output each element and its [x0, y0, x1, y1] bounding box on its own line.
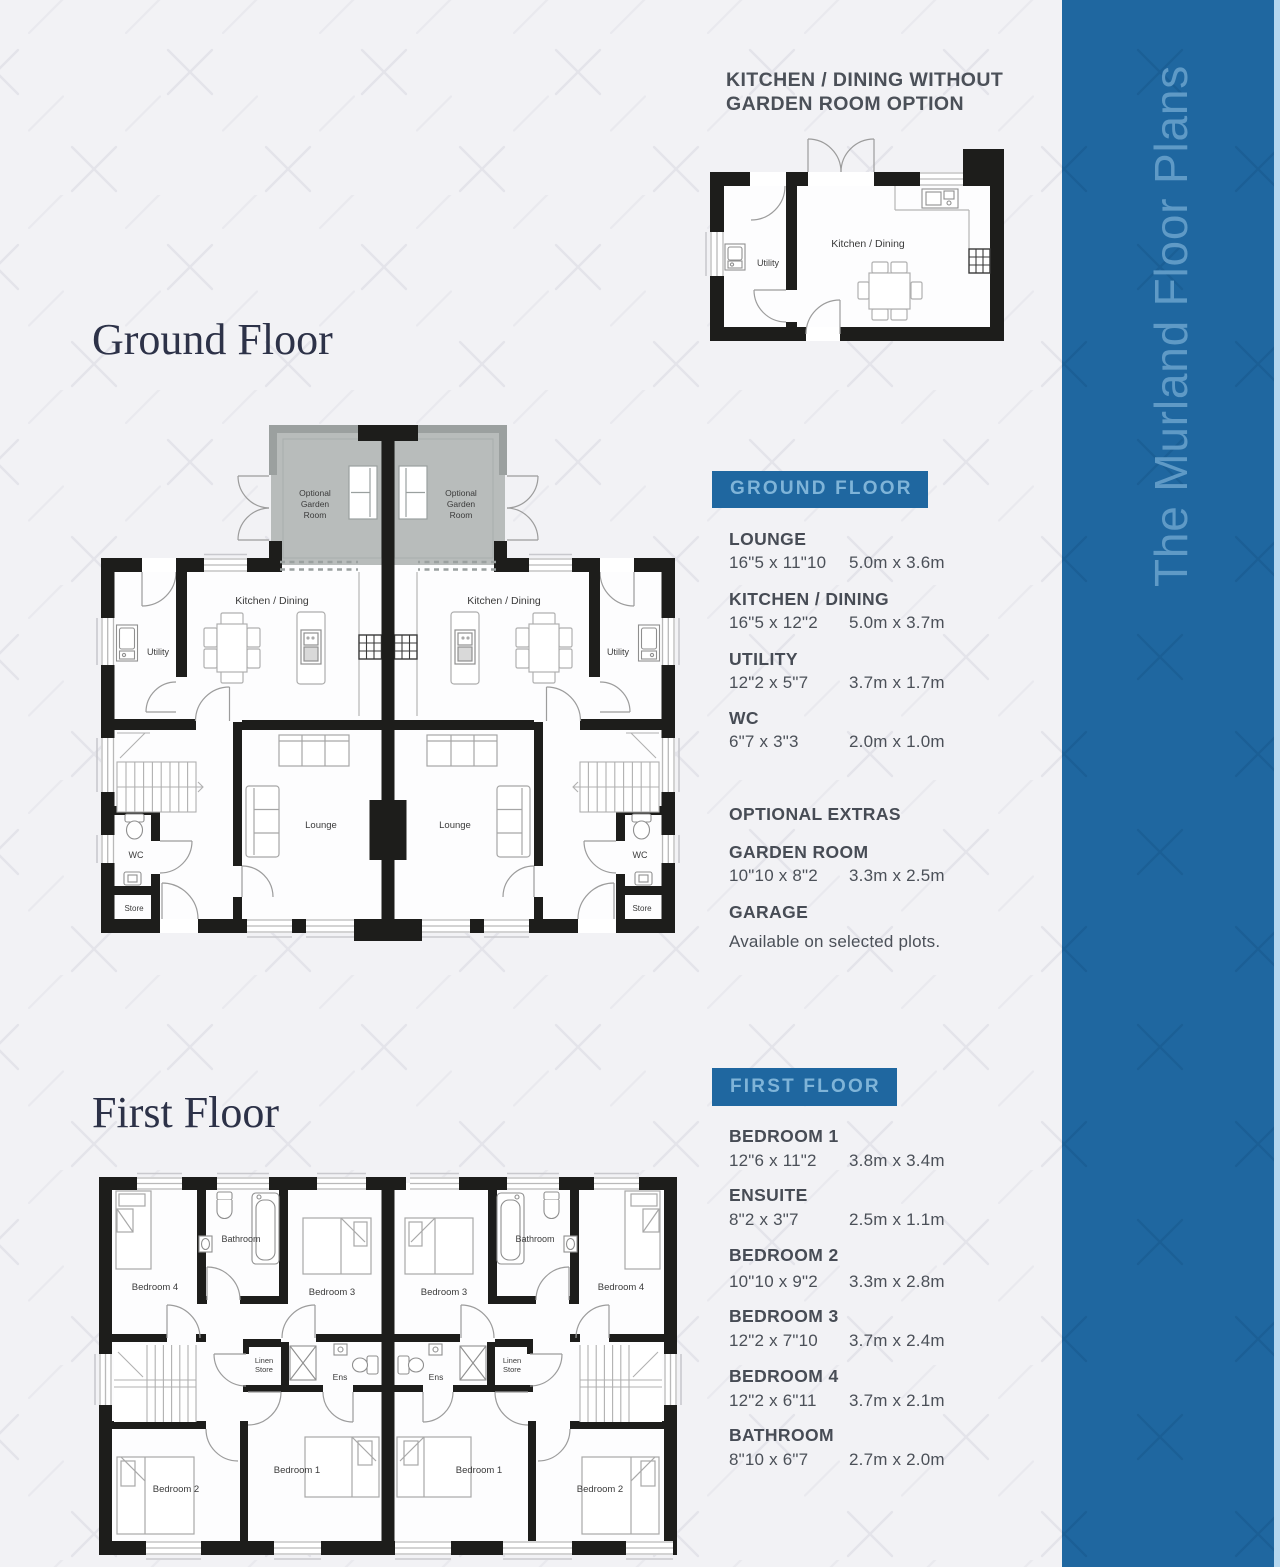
svg-text:Garden: Garden [447, 499, 476, 509]
svg-text:Bedroom 2: Bedroom 2 [577, 1484, 623, 1495]
svg-text:Bedroom 1: Bedroom 1 [456, 1465, 502, 1476]
svg-text:Bedroom 3: Bedroom 3 [309, 1287, 355, 1298]
svg-text:Store: Store [255, 1365, 273, 1374]
svg-text:Optional: Optional [445, 488, 477, 498]
svg-text:Linen: Linen [503, 1356, 521, 1365]
svg-text:Bedroom 4: Bedroom 4 [598, 1282, 644, 1293]
svg-text:Ens: Ens [429, 1372, 444, 1382]
svg-text:Room: Room [450, 510, 473, 520]
svg-text:Garden: Garden [301, 499, 330, 509]
svg-text:Optional: Optional [299, 488, 331, 498]
svg-text:Bathroom: Bathroom [515, 1234, 554, 1244]
svg-text:WC: WC [129, 850, 144, 860]
svg-text:Bedroom 2: Bedroom 2 [153, 1484, 199, 1495]
svg-text:Ens: Ens [333, 1372, 348, 1382]
svg-text:WC: WC [633, 850, 648, 860]
svg-text:Utility: Utility [757, 258, 779, 268]
svg-text:Lounge: Lounge [305, 820, 337, 831]
svg-text:Utility: Utility [147, 647, 169, 657]
svg-text:Bedroom 1: Bedroom 1 [274, 1465, 320, 1476]
svg-text:Kitchen / Dining: Kitchen / Dining [467, 595, 541, 607]
svg-text:Store: Store [632, 904, 652, 913]
svg-text:Store: Store [124, 904, 144, 913]
svg-text:Utility: Utility [607, 647, 629, 657]
svg-text:Room: Room [304, 510, 327, 520]
svg-text:Bedroom 3: Bedroom 3 [421, 1287, 467, 1298]
svg-text:Linen: Linen [255, 1356, 273, 1365]
svg-text:Lounge: Lounge [439, 820, 471, 831]
svg-text:Kitchen / Dining: Kitchen / Dining [235, 595, 309, 607]
svg-text:Bathroom: Bathroom [221, 1234, 260, 1244]
svg-text:Bedroom 4: Bedroom 4 [132, 1282, 178, 1293]
svg-text:Store: Store [503, 1365, 521, 1374]
svg-text:Kitchen / Dining: Kitchen / Dining [831, 238, 905, 250]
